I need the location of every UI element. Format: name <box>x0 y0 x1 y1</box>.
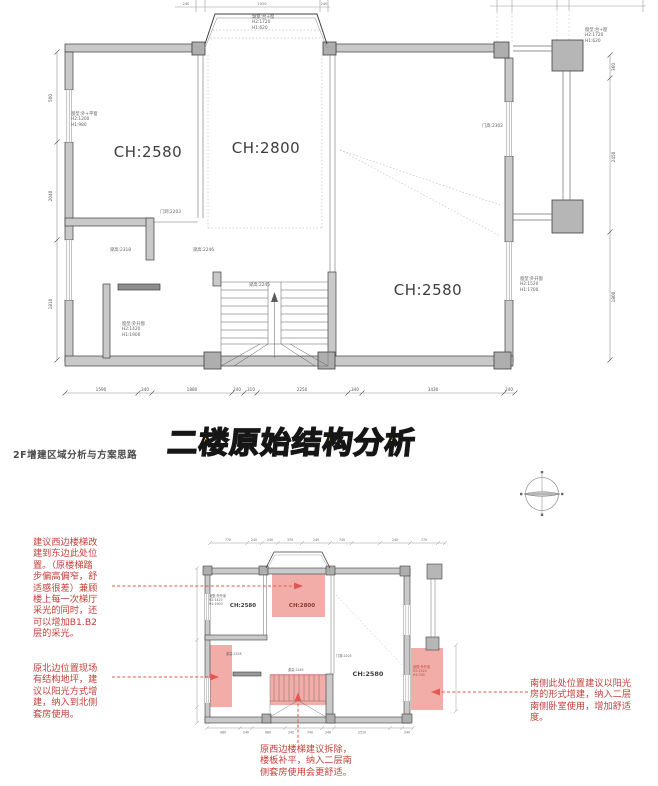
svg-text:2250: 2250 <box>297 387 308 392</box>
svg-text:2040: 2040 <box>48 190 53 201</box>
label-door-1: 门洞:2203 <box>160 210 181 215</box>
svg-text:770: 770 <box>225 538 231 542</box>
svg-text:980: 980 <box>220 731 226 735</box>
highlight-ch2800 <box>272 572 325 617</box>
annotation-north-platform: 原北边位置现场 有结构地坪，建 议以阳光方式增 建，纳入到北侧 套房使用。 <box>33 663 113 720</box>
svg-text:1800: 1800 <box>611 291 616 302</box>
svg-text:340: 340 <box>141 387 149 392</box>
walls <box>65 44 513 366</box>
label-window-bottom-left: 窗型:外开窗 H2:1420 H1:1900 <box>122 322 145 338</box>
svg-text:3430: 3430 <box>428 387 439 392</box>
svg-text:1590: 1590 <box>96 387 107 392</box>
room-label-upper-middle: CH:2800 <box>230 139 302 157</box>
svg-text:240: 240 <box>325 731 331 735</box>
svg-text:1020: 1020 <box>258 2 267 6</box>
annotation-south-sunroom: 南侧此处位置建议以阳光 房的形式增建，纳入二层 南侧卧室使用，增加舒适 度。 <box>530 678 638 724</box>
upper-dim-left-numbers: 500 2040 1810 <box>48 94 53 310</box>
extension-lines <box>497 10 569 42</box>
upper-dim-right-numbers: 360 2450 1800 <box>611 63 616 303</box>
annotation-old-stair-remove: 原西边楼梯建议拆除， 楼板补平，纳入二层南 侧套房使用会更舒适。 <box>260 744 370 778</box>
lower-label-window-right: 窗型:外开窗 H2:1520 H1:700 <box>413 665 430 677</box>
lower-label-window-left: 窗型:外开窗 H2:1420 H1:1900 <box>209 594 226 606</box>
upper-dim-left <box>55 50 60 363</box>
room-label-lower-middle: CH:2800 <box>277 603 327 609</box>
lower-label-beam-2: 梁高:2245 <box>288 668 304 672</box>
windows <box>65 90 513 300</box>
railing <box>513 46 570 220</box>
label-window-left: 窗型:外+平窗 H2:1200 H1:980 <box>71 112 98 128</box>
svg-text:1880: 1880 <box>187 387 198 392</box>
svg-text:340: 340 <box>351 387 359 392</box>
svg-text:240: 240 <box>313 538 319 542</box>
annotation-stair-relocate: 建议西边楼梯改 建到东边此处位 置。（原楼梯踏 步偏高偏窄，舒 适感很差）兼顾 … <box>33 537 113 640</box>
upper-dim-top-numbers: 240 1020 240 <box>183 2 328 6</box>
label-beam-2: 梁高:2246 <box>193 248 214 253</box>
room-label-upper-right: CH:2580 <box>392 281 464 299</box>
label-beam-3: 梁高:2245 <box>249 283 270 288</box>
svg-text:1810: 1810 <box>48 298 53 309</box>
svg-text:740: 740 <box>339 538 345 542</box>
upper-dim-bottom-numbers: 1590 340 1880 240 310 2250 340 3430 240 <box>96 387 514 392</box>
page: { "title": { "text": "二楼原始结构分析" }, "sect… <box>0 0 658 786</box>
label-beam-1: 梁高:2318 <box>110 248 131 253</box>
upper-dim-top <box>175 0 646 12</box>
svg-text:500: 500 <box>48 94 53 102</box>
page-title: 二楼原始结构分析 <box>166 418 419 462</box>
room-label-upper-left: CH:2580 <box>112 143 184 161</box>
svg-text:240: 240 <box>233 387 241 392</box>
columns <box>192 40 583 369</box>
lower-dim-top <box>208 541 447 545</box>
lower-label-door-1: 门洞:2203 <box>336 654 352 658</box>
upper-dim-right <box>608 53 613 363</box>
svg-text:740: 740 <box>307 731 313 735</box>
lower-label-beam-1: 梁高:2318 <box>226 652 242 656</box>
svg-text:2450: 2450 <box>611 151 616 162</box>
stairs <box>221 282 328 366</box>
svg-text:980: 980 <box>265 731 271 735</box>
svg-text:240: 240 <box>288 731 294 735</box>
svg-text:240: 240 <box>505 387 513 392</box>
label-bay-window: 飘窗:台+窗 H2:1720 H1:620 <box>252 15 274 31</box>
svg-text:310: 310 <box>247 387 255 392</box>
svg-text:240: 240 <box>267 538 273 542</box>
svg-text:240: 240 <box>404 731 410 735</box>
svg-text:240: 240 <box>243 731 249 735</box>
label-window-right: 窗型:外开窗 H2:1520 H1:1700 <box>520 277 543 293</box>
upper-dim-bottom <box>63 391 518 396</box>
lower-dim-bottom-numbers: 980 240 980 240 740 240 2510 240 <box>220 731 410 735</box>
svg-text:770: 770 <box>421 538 427 542</box>
room-label-lower-right: CH:2580 <box>340 670 396 678</box>
partitions <box>153 55 335 272</box>
svg-text:360: 360 <box>611 63 616 71</box>
upper-floor-plan: 240 1020 240 <box>0 0 658 410</box>
label-door-2: 门高:2302 <box>482 124 503 129</box>
svg-text:240: 240 <box>183 2 190 6</box>
lower-dim-bottom <box>205 726 415 730</box>
svg-text:240: 240 <box>321 2 328 6</box>
label-window-right-top: 窗型:台+窗 H2:1720 H1:620 <box>585 28 607 44</box>
section-label: 2F增建区域分析与方案思路 <box>13 447 137 461</box>
svg-text:240: 240 <box>251 538 257 542</box>
svg-text:370: 370 <box>287 538 293 542</box>
svg-text:240: 240 <box>392 538 398 542</box>
lower-dim-top-numbers: 770 240 240 370 240 740 240 770 <box>225 538 427 542</box>
highlight-south-sunroom <box>411 648 443 710</box>
svg-text:2510: 2510 <box>358 731 366 735</box>
compass-icon <box>514 465 570 521</box>
